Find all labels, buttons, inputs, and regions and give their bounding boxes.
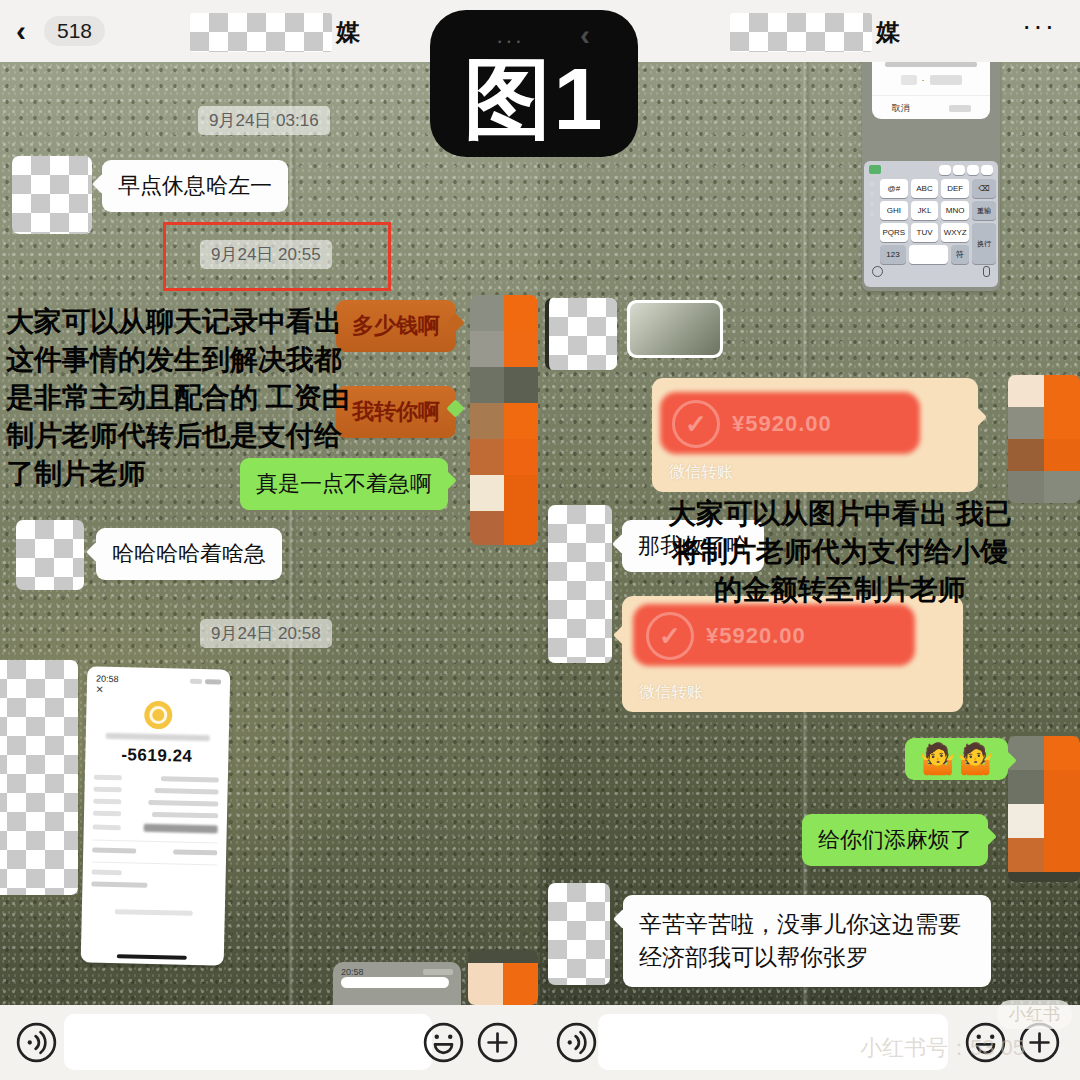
close-icon: × — [96, 684, 221, 699]
censored-avatar[interactable] — [548, 505, 612, 663]
partial-status-time: 20:58 — [341, 967, 364, 977]
message-bubble-highlighted[interactable]: 我转你啊 — [336, 386, 456, 438]
wechat-transfer-bubble[interactable]: ✓ ¥5920.00 微信转账 — [622, 596, 963, 712]
message-input-bar: 小红书号：53 05 小红书 — [540, 1005, 1080, 1080]
transfer-type-label: 微信转账 — [639, 682, 703, 703]
voice-input-icon[interactable] — [555, 1021, 598, 1064]
annotation-text-left: 大家可以从聊天记录中看出 这件事情的发生到解决我都 是非常主动且配合的 工资由 … — [6, 303, 350, 493]
wechat-transfer-bubble[interactable]: ✓ ¥5920.00 微信转账 — [652, 378, 978, 492]
partial-status-icons — [423, 969, 453, 975]
receipt-action-row — [92, 848, 217, 856]
message-bubble[interactable]: 给你们添麻烦了 — [802, 814, 988, 866]
date-stamp: 9月24日 20:58 — [200, 619, 332, 648]
red-highlight-box — [163, 222, 391, 291]
t9-keyboard: @# ABC DEF GHI JKL MNO PQRS TUV WXYZ — [864, 161, 998, 287]
voice-input-icon[interactable] — [15, 1021, 58, 1064]
payment-receipt-image[interactable]: 20:58 × -5619.24 — [81, 666, 231, 965]
message-input-bar — [0, 1005, 540, 1080]
mosaic-blocks — [470, 295, 538, 545]
transfer-amount: ¥5920.00 — [732, 411, 832, 437]
receipt-title-blur — [95, 733, 220, 742]
message-bubble-highlighted[interactable]: 多少钱啊 — [336, 300, 456, 352]
photo-message[interactable] — [627, 300, 723, 358]
globe-icon — [872, 266, 883, 277]
emoji-icon[interactable] — [422, 1021, 465, 1064]
keyboard-screenshot-image[interactable]: · 取消 — [862, 45, 1000, 291]
mosaic-blocks — [468, 950, 538, 1005]
censored-avatar[interactable] — [16, 520, 84, 590]
pixelated-avatar[interactable] — [1008, 375, 1080, 503]
receipt-amount: -5619.24 — [94, 745, 219, 768]
censored-avatar[interactable] — [12, 156, 92, 234]
receipt-detail-rows — [93, 775, 219, 834]
confirm-dialog: · 取消 — [872, 53, 990, 119]
figure-label-badge: ··· ‹ 图1 — [430, 10, 638, 157]
back-chevron-icon[interactable]: ‹ — [16, 14, 26, 48]
chat-title-suffix: 媒 — [876, 16, 900, 48]
transfer-check-icon: ✓ — [646, 612, 694, 660]
keyboard-logo-icon — [869, 165, 881, 174]
receipt-footer-blur — [91, 909, 216, 917]
status-bar-icons — [190, 678, 221, 684]
dialog-cancel-button: 取消 — [892, 102, 910, 115]
more-menu-icon[interactable]: ··· — [1022, 10, 1056, 42]
date-stamp: 9月24日 03:16 — [198, 106, 330, 135]
censored-chat-title — [190, 13, 332, 52]
watermark-badge: 小红书 — [997, 1000, 1072, 1029]
pixelated-avatar[interactable] — [468, 950, 538, 1005]
mosaic-blocks — [1008, 375, 1080, 503]
chat-title-suffix: 媒 — [336, 16, 360, 48]
transfer-amount: ¥5920.00 — [706, 623, 806, 649]
mosaic-blocks — [1008, 736, 1080, 882]
water-drip-streak — [288, 62, 296, 1005]
partial-input-bar — [341, 977, 449, 988]
pixelated-avatar[interactable] — [470, 295, 538, 545]
mic-icon — [983, 266, 990, 277]
transfer-type-label: 微信转账 — [669, 462, 733, 483]
plus-icon[interactable] — [476, 1021, 519, 1064]
divider — [92, 840, 217, 844]
transfer-check-icon: ✓ — [672, 400, 720, 448]
censored-chat-title — [730, 13, 872, 52]
message-bubble[interactable]: 早点休息哈左一 — [102, 160, 288, 212]
censored-avatar[interactable] — [545, 298, 617, 370]
censored-avatar[interactable] — [0, 660, 78, 895]
unread-count-badge[interactable]: 518 — [44, 16, 105, 46]
divider — [92, 862, 217, 866]
emoji-message-bubble[interactable]: 🤷🤷 — [905, 738, 1008, 780]
pixelated-avatar[interactable] — [1008, 736, 1080, 882]
left-chat-panel: ‹ 518 媒 9月24日 03:16 早点休息哈左一 9月24日 20:55 … — [0, 0, 540, 1080]
figure-label: 图1 — [430, 40, 638, 159]
home-indicator — [117, 954, 187, 960]
watermark-id-text: 小红书号：53 05 — [860, 1033, 1025, 1063]
partial-screenshot-image[interactable]: 20:58 — [333, 962, 461, 1005]
annotation-text-right: 大家可以从图片中看出 我已 将制片老师代为支付给小馒 的金额转至制片老师 — [615, 495, 1065, 609]
message-bubble[interactable]: 哈哈哈哈着啥急 — [96, 528, 282, 580]
coin-icon — [143, 701, 172, 730]
text-input-field[interactable] — [64, 1014, 432, 1070]
message-bubble[interactable]: 辛苦辛苦啦，没事儿你这边需要经济部我可以帮你张罗 — [623, 895, 991, 987]
right-chat-panel: 媒 ··· · 取消 — [540, 0, 1080, 1080]
photo-thumbnail — [630, 303, 720, 355]
censored-avatar[interactable] — [548, 883, 610, 985]
